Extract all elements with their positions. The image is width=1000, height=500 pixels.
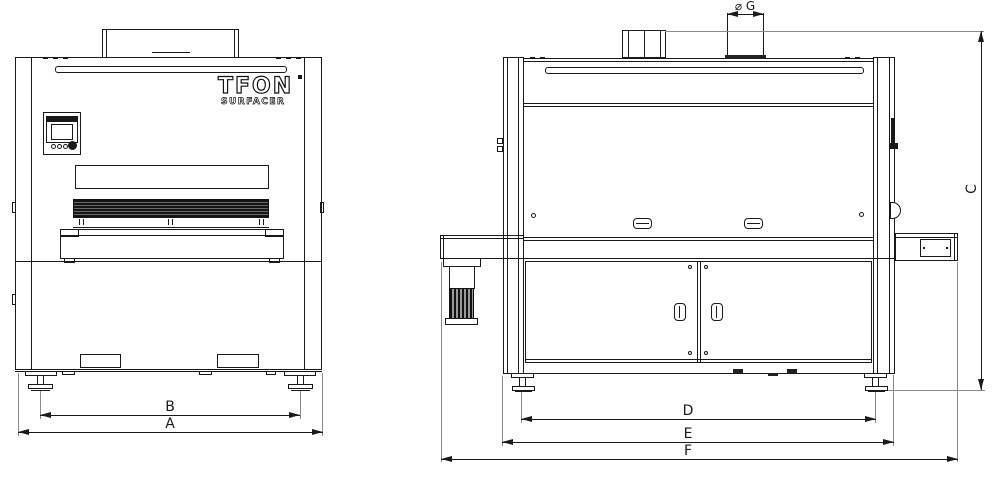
strip-tick: [172, 219, 173, 225]
control-panel-display: [51, 124, 73, 140]
roller-guide-strip: [73, 217, 269, 228]
dim-a-extension-line: [18, 373, 19, 436]
base-tab: [199, 371, 212, 375]
dim-e-extension-line: [893, 375, 894, 446]
front-top-hood: [102, 29, 239, 58]
brand-logo-dot: [298, 75, 302, 79]
dust-duct-side: [763, 13, 764, 56]
infeed-table-edge-line: [443, 235, 444, 259]
door-screw: [688, 265, 692, 269]
dim-e-line: [502, 442, 894, 443]
conveyor-end-cap: [265, 229, 284, 237]
dim-b-label: B: [150, 400, 190, 414]
nameplate-dot: [946, 247, 948, 249]
conveyor-end-cap: [60, 229, 79, 237]
dim-f-arrow: [947, 456, 958, 462]
conveyor-top-line: [60, 235, 284, 236]
base-tab: [787, 369, 797, 373]
panel-bolt: [531, 213, 536, 218]
dim-c-extension-line: [665, 31, 984, 32]
infeed-table-top-line: [440, 238, 524, 239]
dim-f-extension-line: [441, 262, 442, 462]
handwheel-knob[interactable]: [890, 202, 901, 219]
technical-drawing-canvas: TFON SURFACER: [0, 0, 1000, 500]
dim-a-arrow: [312, 429, 323, 435]
panel-handle-line: [636, 223, 649, 224]
exhaust-box-line: [644, 30, 645, 58]
dim-e-arrow: [883, 439, 894, 445]
exhaust-box-line: [660, 30, 661, 58]
cabinet-door-handle-line: [679, 306, 680, 318]
cabinet-door-handle[interactable]: [711, 303, 723, 321]
leveling-foot-base-line: [515, 391, 532, 392]
dust-duct-side: [727, 13, 728, 56]
panel-tick-mark: [855, 57, 860, 59]
side-latch-mark: [12, 202, 16, 213]
leveling-foot-pad: [28, 384, 53, 389]
dim-d-arrow: [865, 416, 876, 422]
abrasive-brush-roller: [73, 199, 269, 217]
motor-mount-body: [449, 266, 475, 289]
strip-tick: [168, 219, 169, 225]
outfeed-table-top-line: [895, 237, 958, 238]
panel-tick-mark: [530, 57, 535, 59]
dim-f-arrow: [441, 456, 452, 462]
base-fork-pocket: [80, 354, 121, 368]
base-tab: [62, 371, 75, 375]
motor-base: [445, 318, 478, 325]
strip-tick: [259, 219, 260, 225]
column-inner-line: [877, 57, 878, 374]
strip-tick: [79, 219, 80, 225]
base-tab: [733, 369, 743, 373]
front-vent-slot: [55, 66, 287, 73]
cabinet-door-handle-line: [716, 306, 717, 318]
front-body-inner-edge: [31, 57, 32, 370]
brand-logo: TFON: [218, 76, 293, 98]
dim-f-extension-line: [957, 262, 958, 462]
side-hood-division-inner: [523, 106, 874, 107]
dim-d-arrow: [521, 416, 532, 422]
strip-tick: [263, 219, 264, 225]
dim-a-extension-line: [322, 373, 323, 436]
side-top-edge-inner: [523, 61, 874, 62]
brand-logo-subtitle: SURFACER: [221, 98, 285, 107]
dim-b-arrow: [289, 412, 300, 418]
front-conveyor-table: [60, 229, 284, 259]
cabinet-door-divider: [697, 261, 698, 363]
nameplate-dot: [923, 247, 925, 249]
cabinet-door-divider: [700, 261, 701, 363]
panel-tick-mark: [540, 57, 545, 59]
dim-d-label: D: [668, 404, 708, 418]
base-tab: [266, 371, 276, 375]
column-bolt: [497, 138, 503, 144]
dim-a-arrow: [18, 429, 29, 435]
side-latch-mark: [320, 202, 324, 213]
dim-e-arrow: [502, 439, 513, 445]
dim-c-label: C: [965, 177, 979, 201]
front-hood-edge-line: [106, 29, 107, 57]
panel-tick-mark: [53, 57, 58, 59]
cabinet-bottom-line: [525, 359, 872, 360]
side-top-edge: [523, 58, 874, 59]
panel-tick-mark: [63, 57, 68, 59]
panel-button[interactable]: [51, 144, 56, 149]
strip-tick: [83, 219, 84, 225]
dim-a-label: A: [150, 417, 190, 431]
column-hinge-bar: [891, 118, 895, 144]
dim-c-arrow: [978, 31, 984, 42]
drive-motor: [449, 288, 474, 319]
front-hood-notch: [152, 52, 190, 53]
dim-b-extension-line: [300, 391, 301, 419]
door-screw: [704, 265, 708, 269]
leveling-foot-pad: [288, 384, 313, 389]
base-fork-pocket: [217, 354, 259, 368]
panel-bolt: [859, 212, 864, 217]
exhaust-box-line: [628, 30, 629, 58]
dim-e-extension-line: [502, 376, 503, 446]
side-vent-slot: [545, 67, 864, 74]
front-opening-slot: [75, 165, 269, 189]
base-tab: [768, 373, 778, 376]
dim-f-label: F: [668, 444, 708, 458]
dim-c-extension-line: [888, 390, 985, 391]
column-inner-line: [507, 57, 508, 374]
dust-duct-flange: [725, 55, 766, 59]
column-inner-line: [518, 57, 519, 374]
dim-e-label: E: [668, 427, 708, 441]
dim-b-arrow: [40, 412, 51, 418]
dim-d-line: [521, 419, 876, 420]
panel-handle-line: [747, 223, 760, 224]
conveyor-level-line: [523, 237, 874, 238]
column-hinge-block: [890, 143, 898, 149]
dim-g-label: ⌀ G: [726, 0, 764, 12]
front-body-division-line: [15, 261, 322, 262]
lower-cabinet: [525, 261, 872, 363]
panel-tick-mark: [286, 57, 291, 59]
panel-knob[interactable]: [68, 141, 77, 150]
frame-division-line: [503, 258, 895, 259]
dim-a-line: [18, 432, 323, 433]
leveling-foot-base-line: [868, 391, 885, 392]
dim-c-arrow: [978, 379, 984, 390]
front-body-inner-edge: [304, 57, 305, 370]
panel-tick-mark: [296, 57, 301, 59]
panel-tick-mark: [43, 57, 48, 59]
front-hood-edge-line: [234, 29, 235, 57]
dim-f-line: [441, 459, 958, 460]
conveyor-level-line-inner: [523, 240, 874, 241]
door-screw: [704, 351, 708, 355]
dim-c-line: [981, 31, 982, 390]
outfeed-table-edge-line: [954, 233, 955, 261]
control-panel-screen-bar: [47, 117, 77, 122]
panel-tick-mark: [845, 57, 850, 59]
cabinet-door-handle[interactable]: [674, 303, 686, 321]
side-base-line: [505, 373, 895, 374]
side-hood-division: [523, 103, 874, 104]
door-screw: [688, 351, 692, 355]
side-latch-mark: [12, 294, 16, 305]
panel-button[interactable]: [57, 144, 62, 149]
column-bolt: [497, 146, 503, 152]
panel-tick-mark: [276, 57, 281, 59]
